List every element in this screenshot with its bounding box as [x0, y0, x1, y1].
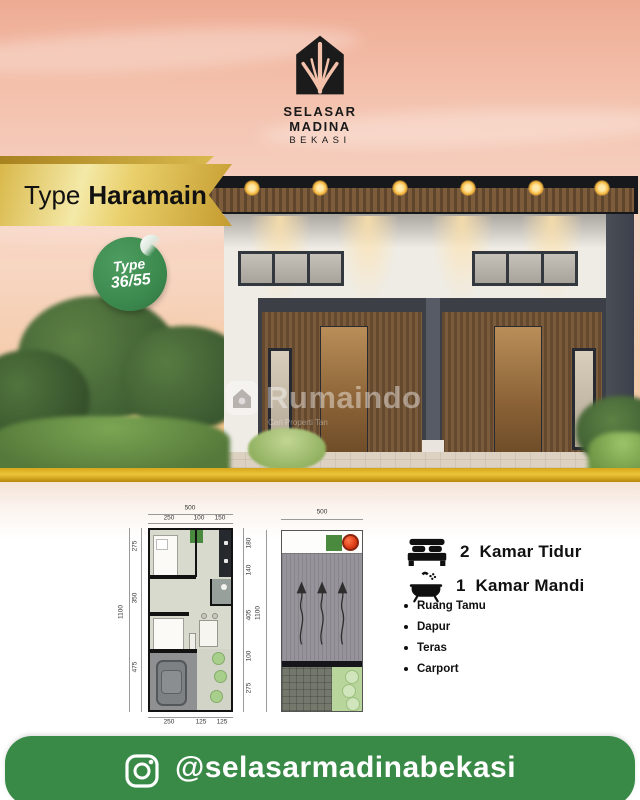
ribbon-type-name: Haramain — [88, 180, 207, 211]
downlight — [528, 180, 544, 196]
downlight — [392, 180, 408, 196]
light-pool — [336, 216, 400, 306]
rumaindo-watermark: Rumaindo Cari Properti Tan — [226, 380, 426, 427]
roof-soffit — [202, 188, 634, 212]
brand-name: SELASAR MADINA — [250, 104, 390, 134]
brand-logo: SELASAR MADINA BEKASI — [250, 34, 390, 146]
dim-line — [148, 523, 233, 524]
dim-label: 405 — [246, 610, 253, 621]
dim-line — [281, 519, 363, 520]
fp-bush — [212, 652, 225, 665]
spec-bedrooms: 2 Kamar Tidur — [406, 537, 582, 567]
dim-line — [243, 528, 244, 712]
bathrooms-count: 1 — [456, 576, 466, 595]
fp-wall — [150, 575, 196, 579]
shrubs-left — [0, 416, 230, 476]
feature-label: Dapur — [417, 621, 450, 633]
dim-label: 350 — [132, 593, 139, 604]
bathrooms-label: Kamar Mandi — [476, 576, 585, 595]
brand-logo-icon — [292, 34, 348, 96]
dim-line — [129, 528, 130, 712]
rp-pavers — [282, 667, 332, 711]
dim-label: 475 — [132, 662, 139, 673]
clerestory-window-left — [238, 251, 344, 286]
rp-water-tank — [342, 534, 359, 551]
clerestory-window-right — [472, 251, 578, 286]
dim-label: 125 — [217, 719, 228, 726]
feature-list: Ruang Tamu Dapur Teras Carport — [404, 598, 486, 682]
dim-label: 1100 — [255, 606, 262, 620]
front-door — [494, 326, 542, 456]
watermark-title: Rumaindo — [266, 380, 422, 416]
house-roof — [196, 176, 638, 214]
rp-bush — [346, 697, 360, 711]
rp-green-box — [326, 535, 342, 551]
rumaindo-house-icon — [226, 381, 258, 415]
fp-stove — [224, 559, 228, 563]
center-pillar — [426, 298, 440, 442]
bullet-dot — [404, 667, 408, 671]
fp-wall — [150, 612, 189, 616]
feature-item: Dapur — [404, 619, 486, 635]
dim-label: 250 — [164, 719, 175, 726]
fp-sink — [224, 541, 228, 545]
dim-label: 100 — [246, 651, 253, 662]
fp-wall — [195, 530, 197, 577]
bed-icon — [406, 537, 448, 567]
bedrooms-label: Kamar Tidur — [480, 542, 582, 561]
dim-label: 250 — [164, 515, 175, 522]
bedrooms-count: 2 — [460, 542, 470, 561]
fp-pillow — [156, 539, 167, 550]
fp-kitchen-counter — [219, 530, 231, 577]
dim-line — [266, 530, 267, 712]
feature-item: Teras — [404, 640, 486, 656]
dim-label: 500 — [185, 505, 196, 512]
dim-label: 125 — [196, 719, 207, 726]
feature-item: Ruang Tamu — [404, 598, 486, 614]
dim-label: 275 — [246, 683, 253, 694]
watermark-tagline: Cari Properti Tan — [268, 418, 426, 427]
dim-label: 140 — [246, 565, 253, 576]
feature-label: Ruang Tamu — [417, 600, 486, 612]
spec-bedrooms-text: 2 Kamar Tidur — [460, 542, 582, 562]
downlight — [312, 180, 328, 196]
fp-car-roof — [161, 670, 182, 693]
agave-plant — [248, 428, 326, 470]
rp-bush — [345, 670, 359, 684]
poster: Rumaindo Cari Properti Tan SELASAR MADIN… — [0, 0, 640, 800]
fp-toilet — [221, 584, 227, 590]
brand-city: BEKASI — [250, 135, 390, 146]
bullet-dot — [404, 604, 408, 608]
gold-divider-band — [0, 468, 640, 482]
fp-chair — [201, 613, 207, 619]
dim-label: 100 — [194, 515, 205, 522]
rp-bush — [342, 684, 356, 698]
feature-label: Teras — [417, 642, 447, 654]
rp-slope-arrows — [282, 554, 362, 660]
dim-label: 500 — [317, 509, 328, 516]
instagram-bar[interactable]: @selasarmadinabekasi — [5, 736, 635, 800]
dim-label: 1100 — [118, 605, 125, 619]
downlight — [244, 180, 260, 196]
roof-plan — [281, 530, 363, 712]
fp-chair — [212, 613, 218, 619]
fp-dining-table — [199, 620, 218, 647]
bullet-dot — [404, 625, 408, 629]
downlight — [460, 180, 476, 196]
feature-label: Carport — [417, 663, 459, 675]
dim-label: 275 — [132, 541, 139, 552]
instagram-icon — [124, 753, 160, 789]
dim-line — [141, 528, 142, 712]
feature-item: Carport — [404, 661, 486, 677]
dim-label: 180 — [246, 538, 253, 549]
downlight — [594, 180, 610, 196]
badge-line2: 36/55 — [110, 271, 152, 292]
spec-bathrooms-text: 1 Kamar Mandi — [456, 576, 584, 596]
type-ribbon: Type Haramain — [0, 164, 232, 226]
bullet-dot — [404, 646, 408, 650]
dim-label: 150 — [215, 515, 226, 522]
instagram-handle: @selasarmadinabekasi — [175, 751, 516, 791]
fp-bathroom — [210, 579, 231, 606]
ribbon-prefix: Type — [24, 180, 80, 211]
floor-plan — [148, 528, 233, 712]
